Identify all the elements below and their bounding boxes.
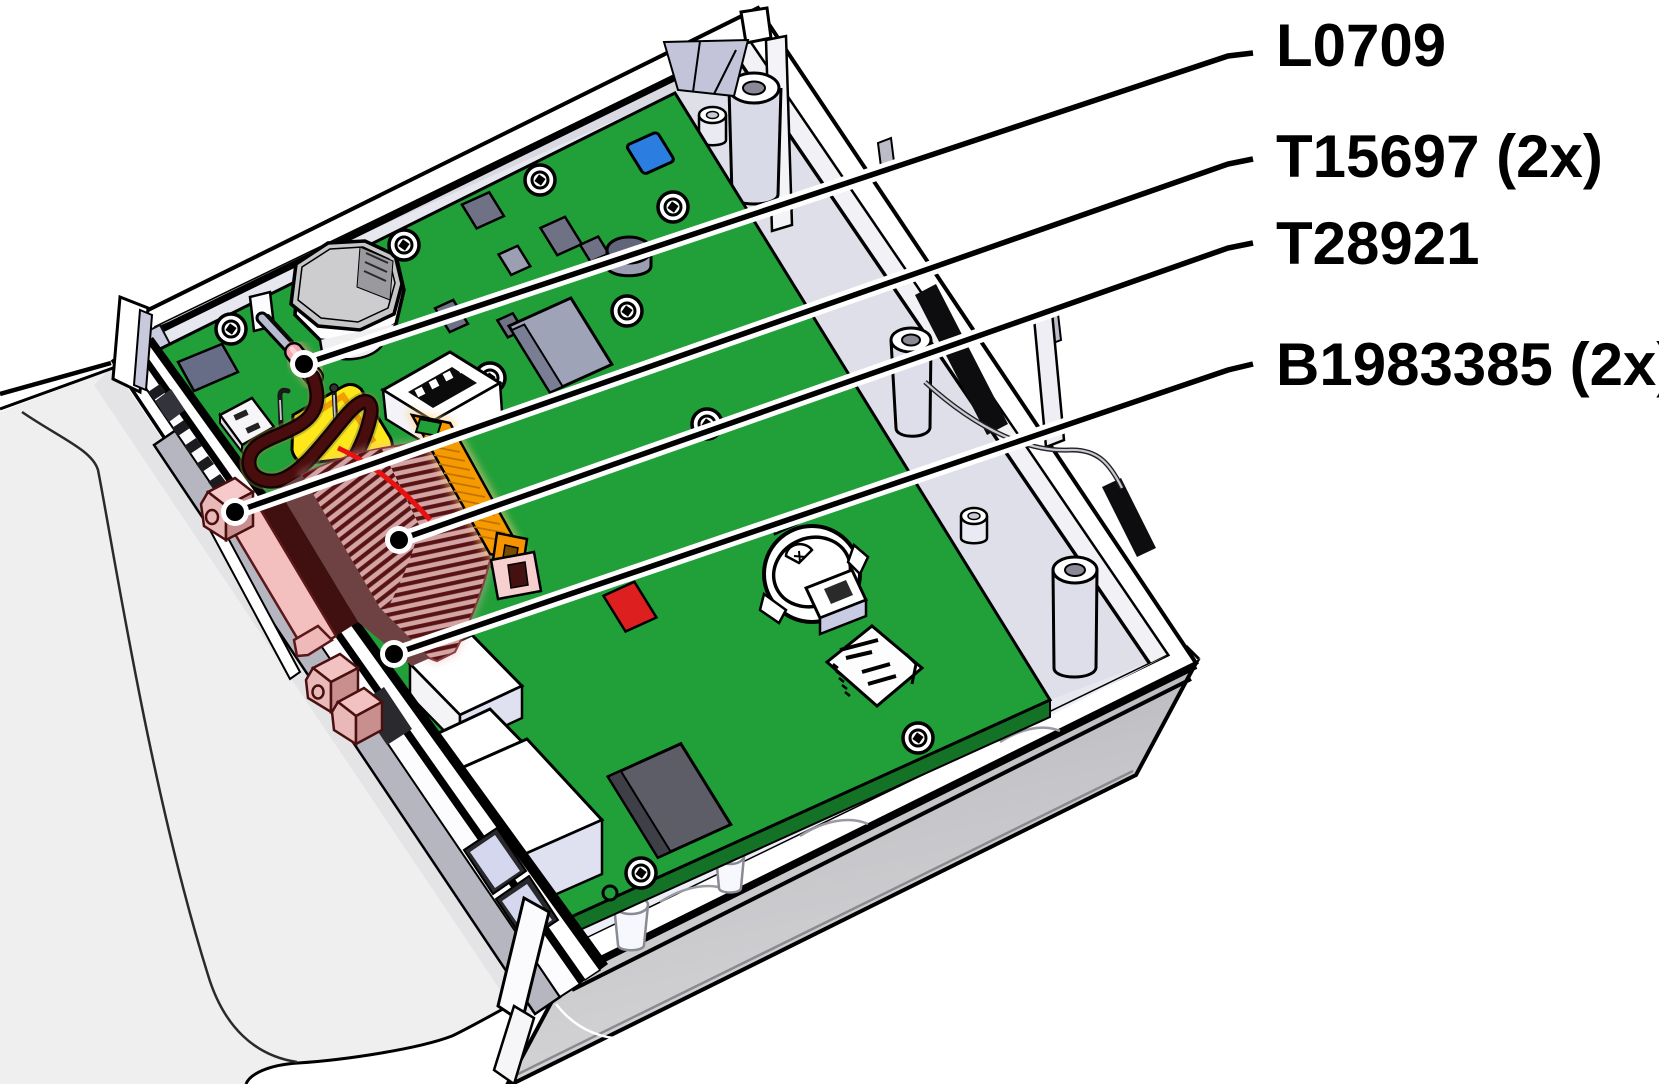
svg-text:L0709: L0709 (1276, 12, 1446, 79)
svg-text:T15697 (2x): T15697 (2x) (1276, 123, 1603, 190)
svg-text:T28921: T28921 (1276, 210, 1480, 277)
svg-text:B1983385 (2x): B1983385 (2x) (1276, 331, 1659, 398)
